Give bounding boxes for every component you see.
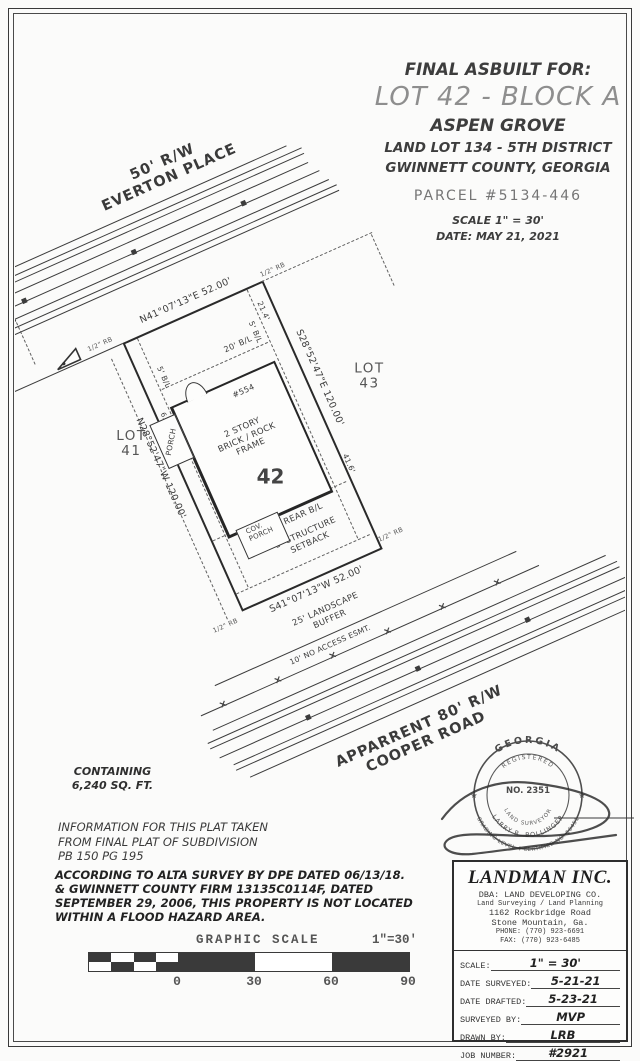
flood-note: ACCORDING TO ALTA SURVEY BY DPE DATED 06… — [55, 868, 413, 924]
title-block: FINAL ASBUILT FOR: LOT 42 - BLOCK A ASPE… — [372, 60, 624, 243]
land-lot-title: LAND LOT 134 - 5TH DISTRICT — [372, 140, 624, 156]
sewer-marker-icon — [305, 714, 312, 721]
firm-address: Stone Mountain, Ga. — [460, 918, 620, 928]
graphic-scale-bar — [88, 952, 410, 972]
firm-block: LANDMAN INC. DBA: LAND DEVELOPING CO. La… — [452, 860, 628, 1042]
date-note: DATE: MAY 21, 2021 — [372, 230, 624, 243]
corner-marker-label: 1/2" RB — [86, 335, 114, 353]
fence-x-icon: × — [437, 600, 449, 613]
scale-tick-label: 30 — [246, 974, 262, 989]
fence-x-icon: × — [327, 649, 339, 662]
title-line: FINAL ASBUILT FOR: — [372, 60, 624, 79]
scale-segment — [178, 953, 255, 971]
scale-checker — [89, 953, 178, 971]
firm-row-scale: SCALE: 1" = 30' — [460, 953, 620, 971]
seal-number-text: NO. 2351 — [506, 786, 550, 796]
subdivision-title: ASPEN GROVE — [372, 116, 624, 136]
fence-x-icon: × — [382, 625, 394, 638]
seal-state-text: GEORGIA — [493, 735, 563, 756]
scale-segment — [332, 953, 409, 971]
county-title: GWINNETT COUNTY, GEORGIA — [372, 160, 624, 176]
fence-x-icon: × — [491, 576, 503, 589]
fence-x-icon: × — [272, 674, 284, 687]
lot-number-label: 42 — [257, 464, 285, 488]
firm-dba: DBA: LAND DEVELOPING CO. — [460, 890, 620, 900]
firm-row-drawn-by: DRAWN BY: LRB — [460, 1025, 620, 1043]
sewer-marker-icon — [21, 298, 28, 305]
firm-address: 1162 Rockbridge Road — [460, 908, 620, 918]
scale-tick-label: 60 — [323, 974, 339, 989]
containing-note: CONTAINING 6,240 SQ. FT. — [55, 765, 170, 793]
corner-marker-label: 1/2" RB — [212, 617, 240, 635]
survey-plat-sheet: { "title_block": { "line1": "FINAL ASBUI… — [0, 0, 640, 1055]
sewer-marker-icon — [415, 665, 422, 672]
parcel-number: PARCEL #5134-446 — [372, 188, 624, 204]
surveyor-seal: GEORGIA REGISTERED NO. 2351 LAND SURVEYO… — [436, 723, 636, 873]
plat-info-note: INFORMATION FOR THIS PLAT TAKEN FROM FIN… — [58, 820, 268, 864]
fence-x-icon: × — [217, 698, 229, 711]
lot-43-label: LOT 43 — [354, 361, 384, 391]
scale-tick-label: 90 — [400, 974, 416, 989]
sewer-marker-icon — [524, 616, 531, 623]
seal-surveyor-text: LAND SURVEYOR — [502, 808, 553, 827]
seal-registered-text: REGISTERED — [501, 754, 556, 770]
graphic-scale-title: GRAPHIC SCALE — [196, 933, 320, 947]
lot-block-title: LOT 42 - BLOCK A — [372, 82, 624, 112]
firm-name: LANDMAN INC. — [460, 867, 620, 889]
graphic-scale-ratio: 1"=30' — [372, 933, 417, 947]
firm-fax: FAX: (770) 923-6485 — [460, 937, 620, 946]
firm-row-job-number: JOB NUMBER: #2921 — [460, 1043, 620, 1061]
firm-row-date-surveyed: DATE SURVEYED: 5-21-21 — [460, 971, 620, 989]
firm-row-date-drafted: DATE DRAFTED: 5-23-21 — [460, 989, 620, 1007]
firm-phone: PHONE: (770) 923-6691 — [460, 928, 620, 937]
lot-41-label: LOT 41 — [116, 429, 146, 459]
corner-marker-label: 1/2" RB — [377, 526, 405, 544]
firm-services: Land Surveying / Land Planning — [460, 900, 620, 908]
scale-note: SCALE 1" = 30' — [372, 214, 624, 227]
adjoiner-line-lot43 — [261, 232, 372, 282]
firm-divider — [454, 950, 626, 951]
sewer-marker-icon — [240, 200, 247, 207]
scale-tick-label: 0 — [173, 974, 181, 989]
firm-row-surveyed-by: SURVEYED BY: MVP — [460, 1007, 620, 1025]
sewer-marker-icon — [131, 249, 138, 256]
